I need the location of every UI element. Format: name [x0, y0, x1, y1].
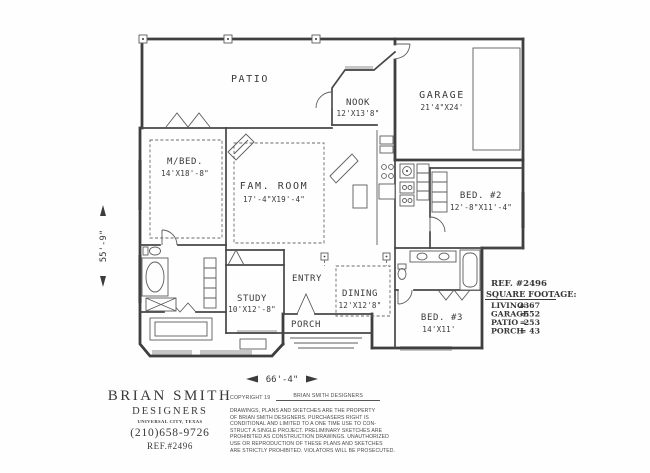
firm-phone: (210)658-9726 [92, 427, 248, 439]
copyright-year-line: COPYRIGHT 19 [230, 395, 270, 401]
room-label-porch: PORCH [291, 320, 321, 330]
copyright-line: CONDITIONAL AND LIMITED TO A ONE TIME US… [230, 421, 380, 428]
firm-subtitle: DESIGNERS [92, 406, 248, 417]
room-dims-bed3: 14'X11' [422, 325, 455, 334]
square-footage-table: REF. #2496 SQUARE FOOTAGE: LIVING = 2367… [485, 279, 577, 336]
room-dims-nook: 12'X13'8" [337, 109, 380, 118]
overall-width-label: 66'-4" [266, 375, 299, 385]
floor-plan-sheet: PATIO NOOK 12'X13'8" GARAGE 21'4"X24' M/… [0, 0, 650, 473]
copyright-line: OF BRIAN SMITH DESIGNERS. PURCHASERS RIG… [230, 415, 380, 422]
room-label-study: STUDY [237, 294, 267, 304]
room-dims-dining: 12'X12'8" [339, 301, 382, 310]
room-label-mbed: M/BED. [167, 157, 203, 167]
overall-depth-label: 55'-9" [99, 230, 109, 263]
room-label-dining: DINING [342, 289, 378, 299]
firm-name: BRIAN SMITH [92, 388, 248, 405]
copyright-line: PROHIBITED AS CONSTRUCTION DRAWINGS. UNA… [230, 434, 380, 441]
room-label-famroom: FAM. ROOM [240, 181, 309, 192]
copyright-line: STRUCT A SINGLE PROJECT. PRELIMINARY SKE… [230, 428, 380, 435]
sf-eq: = [520, 327, 527, 336]
room-label-bed2: BED. #2 [460, 191, 502, 201]
copyright-line: ARE STRICTLY PROHIBITED. VIOLATORS WILL … [230, 448, 380, 455]
plan-ref: REF. #2496 [491, 279, 547, 289]
copyright-header: COPYRIGHT 19 BRIAN SMITH DESIGNERS [230, 393, 380, 401]
copyright-owner: BRIAN SMITH DESIGNERS [276, 393, 380, 401]
copyright-body: DRAWINGS, PLANS AND SKETCHES ARE THE PRO… [230, 408, 380, 454]
room-dims-garage: 21'4"X24' [421, 103, 464, 112]
firm-location: UNIVERSAL CITY, TEXAS [92, 419, 248, 424]
room-dims-mbed: 14'X18'-8" [161, 169, 209, 178]
firm-ref: REF.#2496 [92, 441, 248, 451]
dim-arrow-left [246, 376, 258, 383]
room-dims-study: 10'X12'-8" [228, 305, 276, 314]
sf-value-porch: 43 [529, 327, 540, 336]
room-dims-famroom: 17'-4"X19'-4" [243, 195, 305, 204]
copyright-line: DRAWINGS, PLANS AND SKETCHES ARE THE PRO… [230, 408, 380, 415]
room-label-entry: ENTRY [292, 274, 322, 284]
dim-arrow-right [306, 376, 318, 383]
room-label-patio: PATIO [231, 74, 269, 85]
room-label-garage: GARAGE [419, 90, 465, 101]
room-dims-bed2: 12'-8"X11'-4" [450, 203, 512, 212]
square-footage-title: SQUARE FOOTAGE: [486, 289, 577, 299]
room-label-nook: NOOK [346, 98, 370, 108]
copyright-line: USE OR REPRODUCTION OF THESE PLANS AND S… [230, 441, 380, 448]
copyright-block: COPYRIGHT 19 BRIAN SMITH DESIGNERS DRAWI… [230, 393, 380, 454]
room-label-bed3: BED. #3 [421, 313, 463, 323]
dim-arrow-down [100, 276, 106, 287]
designer-title-block: BRIAN SMITH DESIGNERS UNIVERSAL CITY, TE… [92, 388, 248, 451]
dim-arrow-up [100, 205, 106, 216]
